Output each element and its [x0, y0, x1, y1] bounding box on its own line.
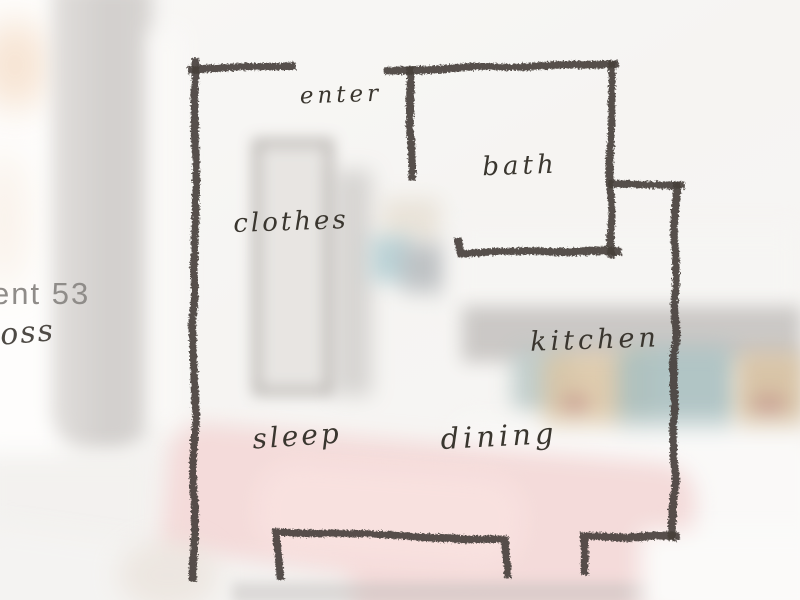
wall-entry-partition	[410, 70, 412, 177]
caption-script-name: toss	[0, 313, 56, 354]
wall-top-wall-right	[388, 65, 616, 71]
room-label-dining: dining	[440, 416, 559, 456]
wall-left-wall	[193, 62, 196, 578]
room-label-bath: bath	[482, 150, 558, 183]
wall-kitchen-right-wall	[673, 185, 676, 538]
room-label-kitchen: kitchen	[530, 322, 661, 358]
floor-plan-walls	[0, 0, 800, 600]
room-label-clothes: clothes	[233, 205, 349, 239]
wall-kitchen-top-wall	[614, 184, 680, 186]
room-label-sleep: sleep	[251, 416, 342, 455]
wall-bath-bottom-wall	[457, 240, 617, 252]
caption-apartment-number: ent 53	[0, 276, 90, 312]
floor-plan-overlay-image: enter bath clothes kitchen sleep dining …	[0, 0, 800, 600]
wall-kitchen-bottom-wall	[584, 536, 677, 573]
room-label-enter: enter	[299, 81, 382, 110]
wall-bath-right-wall	[611, 66, 613, 254]
wall-bottom-wall	[277, 533, 507, 576]
wall-top-wall-left	[191, 67, 293, 70]
